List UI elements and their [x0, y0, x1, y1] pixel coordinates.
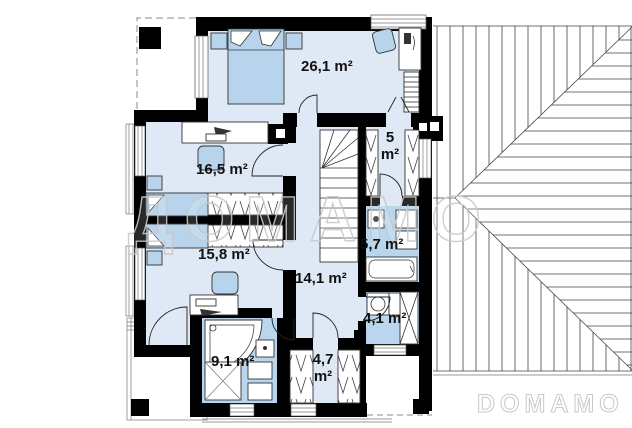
desk-icon-16	[182, 122, 268, 143]
room-label-wardrobe-5: 5 m²	[370, 129, 410, 163]
room-label-line: m²	[370, 146, 410, 163]
window-bottom-bath	[230, 404, 254, 416]
floor-plan: ДОМАМО DOMAMO 26,1 m² 16,5 m² 15,8 m² 14…	[0, 0, 632, 428]
window-left-bedroom26	[195, 36, 208, 98]
vent-duct	[268, 124, 288, 144]
desk-icon-26	[399, 28, 421, 70]
terrace-pillar	[131, 399, 149, 416]
room-label-line: 4,7	[301, 351, 345, 368]
room-label-closet-47: 4,7 m²	[301, 351, 345, 385]
window-bottom-closet	[291, 404, 316, 416]
room-label-bathroom-57: 5,7 m²	[360, 236, 403, 253]
window-bottom-laundry	[374, 345, 406, 355]
window-top	[371, 15, 426, 29]
room-label-bedroom-26: 26,1 m²	[301, 58, 353, 75]
room-label-hall-14: 14,1 m²	[295, 270, 347, 287]
sink-icon	[248, 383, 272, 400]
brand-logo: DOMAMO	[477, 390, 624, 419]
nightstand-icon	[286, 33, 302, 49]
room-label-bathroom-91: 9,1 m²	[211, 353, 254, 370]
nightstand-icon	[211, 33, 227, 49]
desk-icon-15	[190, 295, 238, 316]
window-left-bedroom16	[135, 126, 145, 176]
cabinet-icon	[256, 340, 274, 357]
bathtub-icon	[366, 257, 417, 281]
window-right	[419, 139, 431, 178]
bed-icon-26	[228, 29, 284, 104]
room-label-line: m²	[301, 368, 345, 385]
room-label-laundry-41: 4,1 m²	[363, 310, 406, 327]
room-label-bedroom-15: 15,8 m²	[198, 246, 250, 263]
watermark: ДОМАМО	[128, 182, 492, 256]
room-label-line: 5	[370, 129, 410, 146]
chimney-top-left	[139, 27, 161, 49]
chair-icon-15	[212, 272, 238, 294]
room-label-bedroom-16: 16,5 m²	[196, 161, 248, 178]
